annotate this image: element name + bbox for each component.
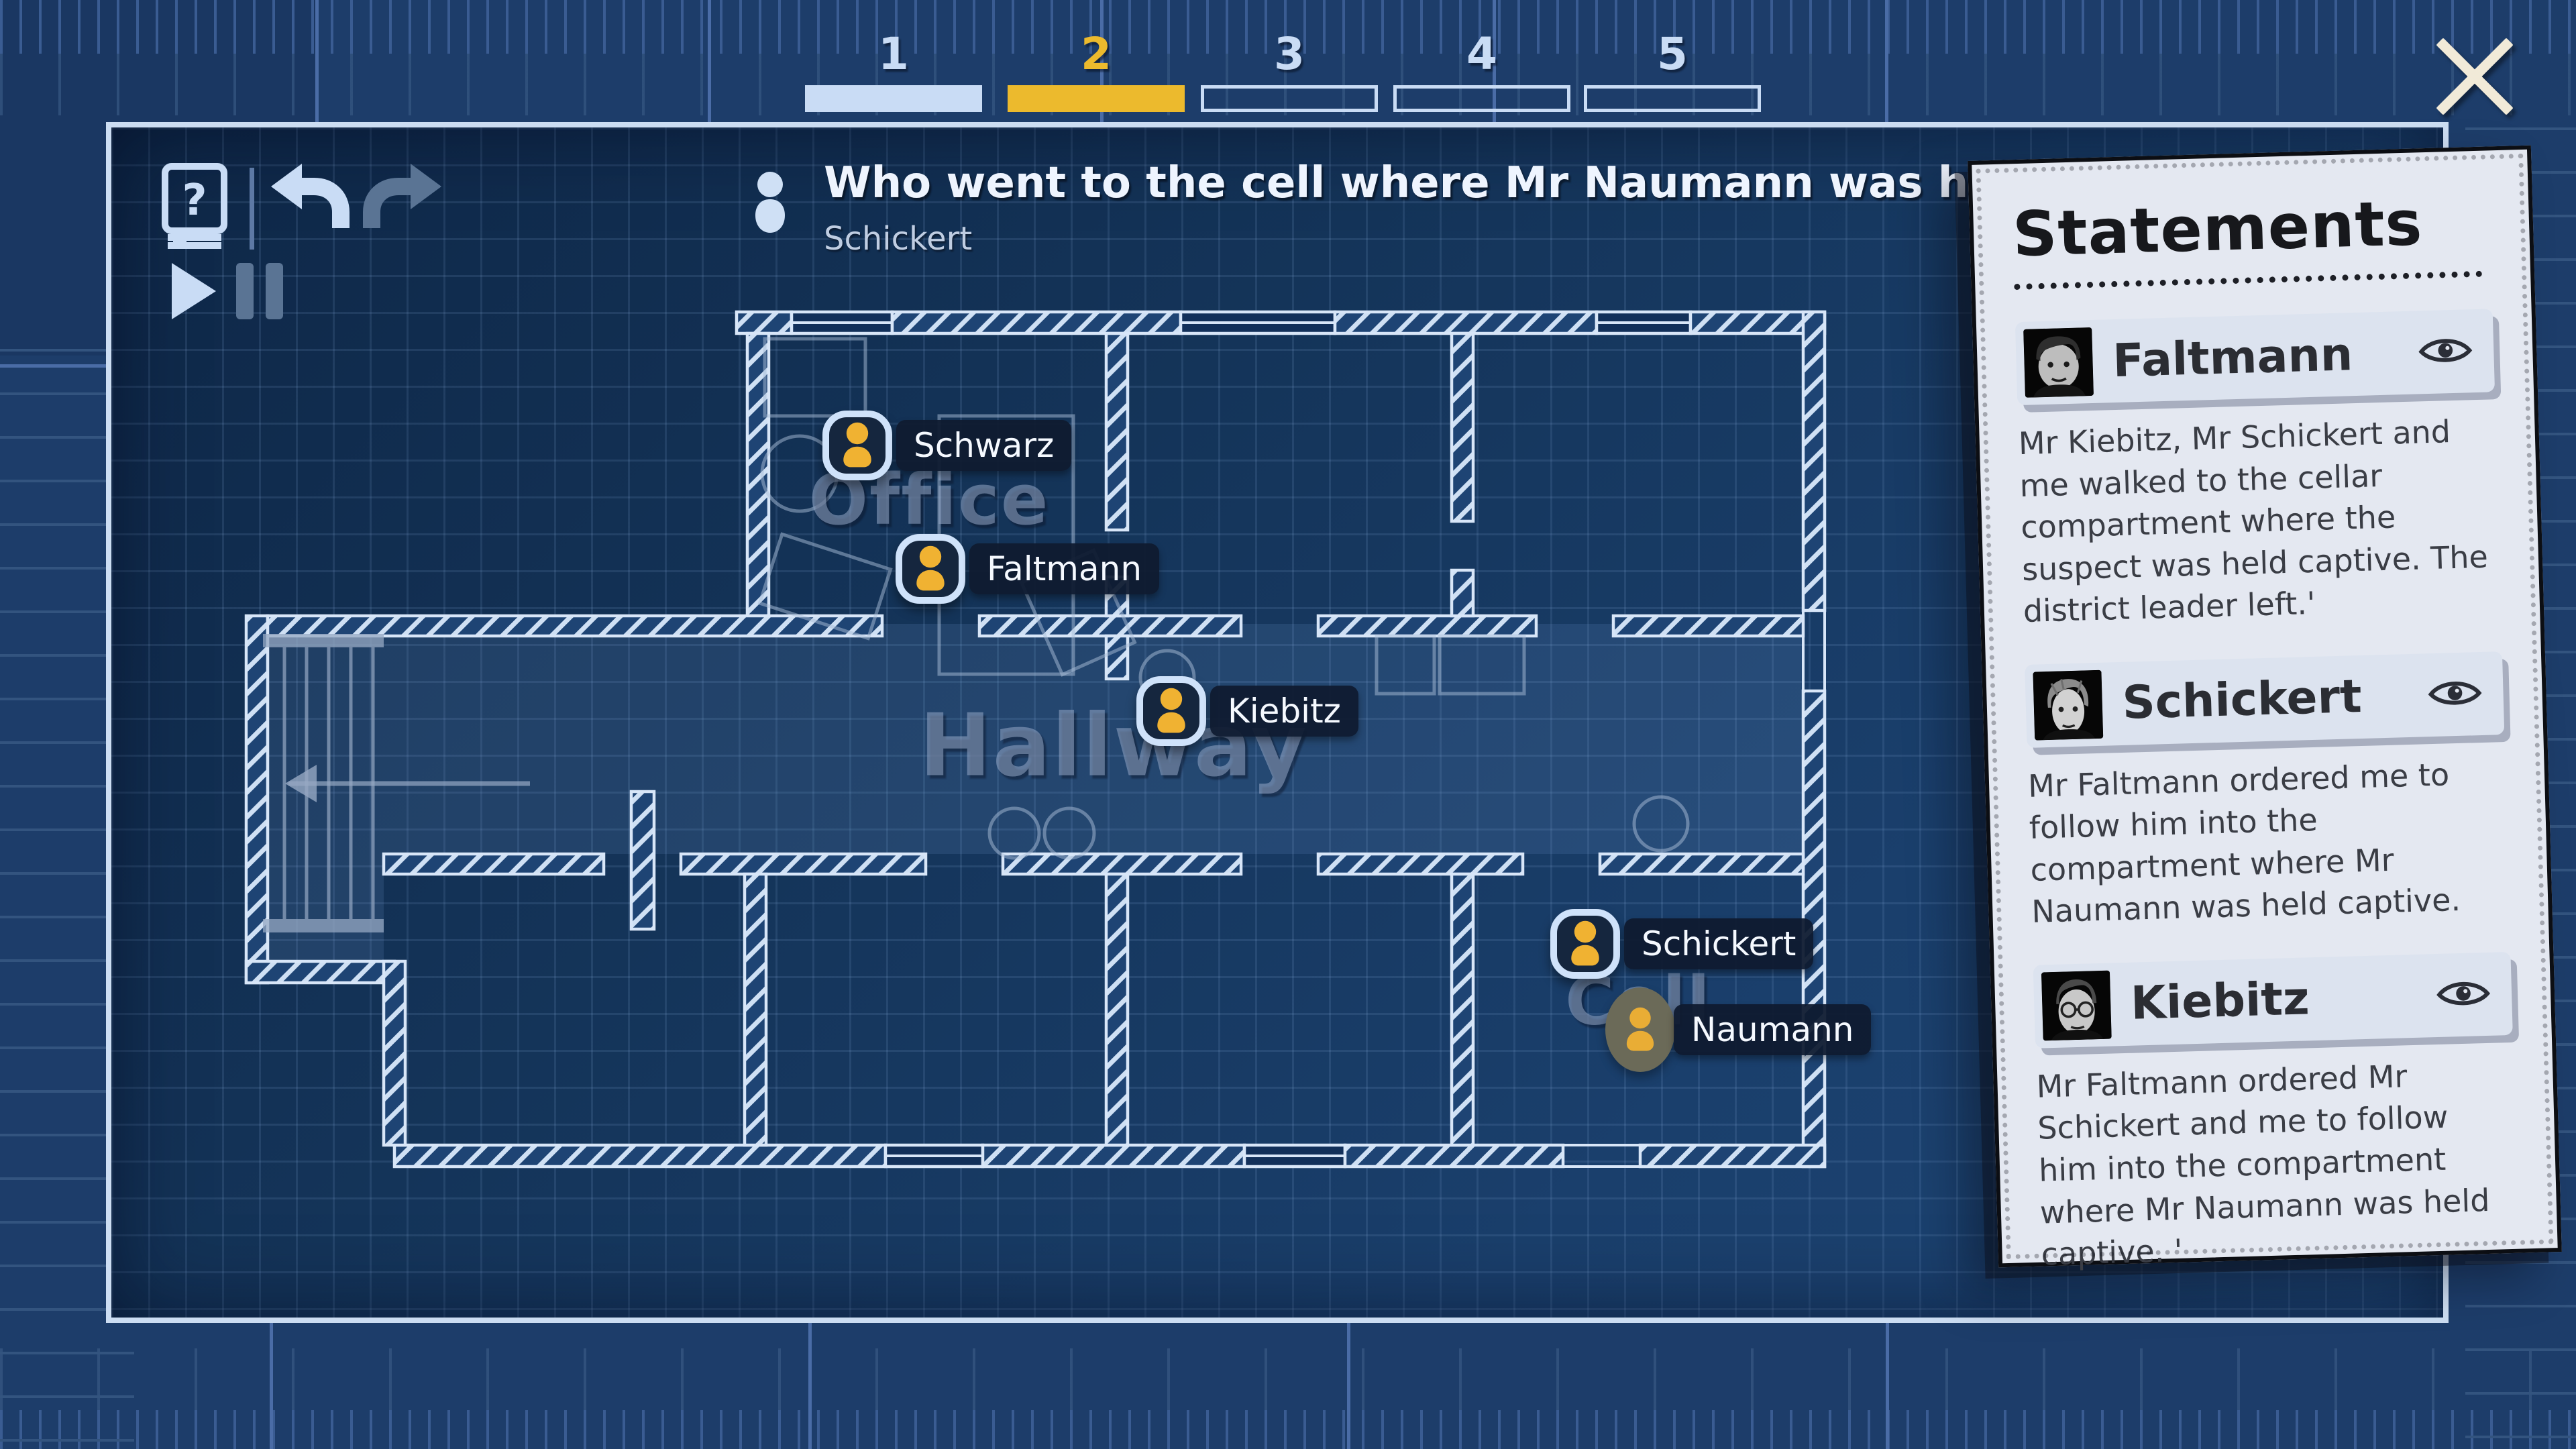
token-label-kiebitz: Kiebitz [1210,686,1358,737]
eye-icon[interactable] [2417,331,2475,372]
token-label-schwarz: Schwarz [896,420,1071,471]
statements-panel: Statements Faltmann Mr Kiebitz, Mr Schic… [1968,146,2562,1268]
step-number-1: 1 [805,28,982,80]
step-bar-2[interactable] [1008,85,1185,112]
toolbar-divider [250,168,254,250]
step-bar-5[interactable] [1584,85,1761,112]
step-number-5: 5 [1584,28,1761,80]
token-label-naumann: Naumann [1674,1004,1871,1055]
avatar-faltmann [2023,327,2094,398]
person-icon [1147,686,1195,737]
avatar-kiebitz [2041,971,2112,1041]
redo-icon [360,161,444,241]
play-button[interactable] [168,260,219,325]
help-book-icon: ? [160,162,229,251]
statement-text-kiebitz: Mr Faltmann ordered Mr Schickert and me … [2036,1053,2519,1275]
statement-card-faltmann[interactable]: Faltmann [2015,309,2495,405]
token-naumann[interactable] [1605,987,1675,1072]
statements-title: Statements [2012,185,2491,270]
undo-button[interactable] [268,161,353,244]
token-faltmann[interactable] [896,534,965,604]
dotted-rule [2014,271,2482,290]
pause-icon [233,260,286,322]
step-number-3: 3 [1201,28,1378,80]
avatar-schickert [2033,670,2103,741]
ruler-long-tick [708,0,711,122]
step-bar-3[interactable] [1201,85,1378,112]
token-label-faltmann: Faltmann [969,543,1159,594]
redo-button[interactable] [360,161,444,244]
token-kiebitz[interactable] [1136,676,1206,746]
question-person-icon [750,171,790,238]
question-answer: Schickert [824,220,972,258]
statement-name: Kiebitz [2130,973,2310,1030]
step-bar-1[interactable] [805,85,982,112]
statement-name: Faltmann [2112,328,2353,388]
token-schwarz[interactable] [822,411,892,480]
statement-card-kiebitz[interactable]: Kiebitz [2033,952,2513,1049]
step-bar-4[interactable] [1393,85,1570,112]
statement-text-schickert: Mr Faltmann ordered me to follow him int… [2027,752,2510,933]
step-number-4: 4 [1393,28,1570,80]
person-icon [906,543,955,594]
person-icon [1561,918,1609,969]
play-icon [168,260,219,322]
token-schickert[interactable] [1550,909,1620,979]
ruler-long-tick [1885,0,1888,122]
help-book-button[interactable]: ? [160,162,229,254]
person-icon [833,420,881,471]
statement-name: Schickert [2122,670,2363,730]
svg-text:?: ? [182,176,207,225]
close-icon[interactable] [2437,39,2512,114]
token-label-schickert: Schickert [1624,918,1813,969]
pause-button[interactable] [233,260,286,325]
statement-text-faltmann: Mr Kiebitz, Mr Schickert and me walked t… [2018,409,2501,632]
ruler-long-tick [315,0,319,122]
step-number-2: 2 [1008,28,1185,80]
undo-icon [268,161,353,241]
statement-card-schickert[interactable]: Schickert [2025,651,2504,748]
ruler-ticks-bottom-fine [0,1410,2576,1449]
eye-icon[interactable] [2426,674,2484,714]
eye-icon[interactable] [2434,975,2492,1015]
ruler-ticks-bottom-medium [0,1348,2576,1449]
person-icon [1617,1004,1664,1055]
